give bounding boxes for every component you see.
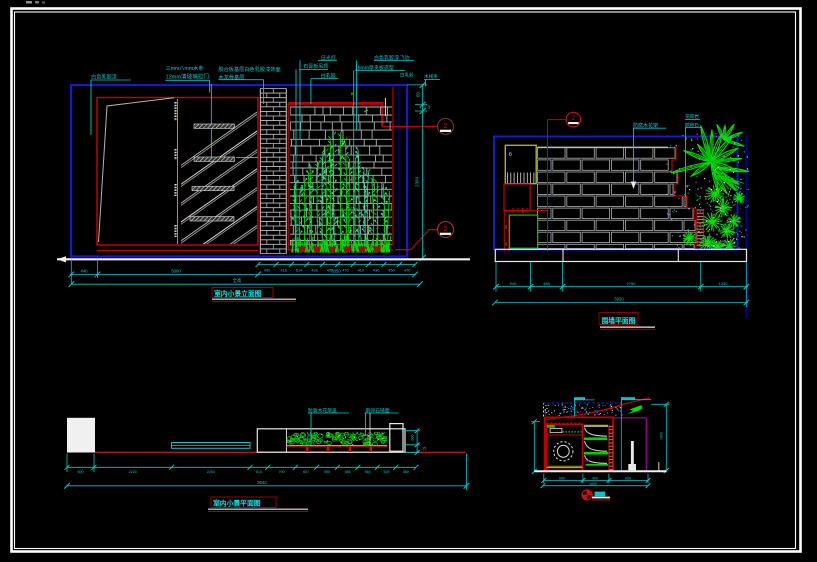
svg-text:485: 485 bbox=[543, 281, 550, 286]
svg-text:595: 595 bbox=[324, 470, 330, 474]
svg-text:花岗岩: 花岗岩 bbox=[685, 113, 699, 120]
svg-text:白乳胶: 白乳胶 bbox=[400, 72, 414, 79]
svg-text:2: 2 bbox=[444, 226, 448, 233]
svg-text:600: 600 bbox=[559, 476, 565, 480]
svg-text:600: 600 bbox=[78, 470, 84, 474]
svg-text:2: 2 bbox=[571, 115, 575, 122]
svg-text:2350: 2350 bbox=[415, 176, 420, 187]
svg-text:600: 600 bbox=[625, 476, 631, 480]
svg-text:514: 514 bbox=[296, 269, 302, 273]
svg-text:飞边: 飞边 bbox=[400, 54, 410, 61]
svg-text:2750: 2750 bbox=[627, 281, 637, 286]
svg-text:1800: 1800 bbox=[660, 432, 664, 440]
svg-text:胶合板基层白色乳胶漆饰面: 胶合板基层白色乳胶漆饰面 bbox=[218, 65, 280, 73]
svg-text:476: 476 bbox=[342, 269, 348, 273]
svg-text:410: 410 bbox=[358, 269, 364, 273]
svg-text:室内小景立面图: 室内小景立面图 bbox=[214, 289, 262, 298]
svg-text:1330: 1330 bbox=[719, 281, 729, 286]
svg-text:440: 440 bbox=[81, 268, 89, 273]
svg-text:1600: 1600 bbox=[589, 482, 597, 486]
svg-text:全高: 全高 bbox=[233, 277, 242, 284]
svg-text:436: 436 bbox=[373, 269, 379, 273]
svg-text:600: 600 bbox=[411, 435, 415, 441]
svg-text:607: 607 bbox=[303, 470, 309, 474]
svg-text:470: 470 bbox=[404, 269, 410, 273]
svg-text:2220: 2220 bbox=[129, 470, 137, 474]
svg-text:585: 585 bbox=[345, 470, 351, 474]
svg-text:室内小景平面图: 室内小景平面图 bbox=[213, 499, 261, 508]
svg-text:790: 790 bbox=[279, 470, 285, 474]
svg-text:白色乳胶漆: 白色乳胶漆 bbox=[91, 72, 117, 80]
svg-text:5000: 5000 bbox=[171, 268, 181, 273]
svg-text:2250: 2250 bbox=[207, 470, 215, 474]
svg-text:436: 436 bbox=[311, 269, 317, 273]
svg-text:防腐木花架: 防腐木花架 bbox=[633, 122, 658, 129]
svg-text:围墙平面图: 围墙平面图 bbox=[602, 316, 636, 325]
svg-text:560: 560 bbox=[365, 470, 371, 474]
svg-text:510: 510 bbox=[256, 470, 262, 474]
svg-text:三mm八mm木条: 三mm八mm木条 bbox=[166, 64, 204, 72]
svg-text:525: 525 bbox=[384, 470, 390, 474]
svg-text:8040: 8040 bbox=[257, 480, 267, 485]
svg-text:450: 450 bbox=[264, 269, 270, 273]
svg-text:木线条: 木线条 bbox=[424, 73, 438, 80]
svg-text:416: 416 bbox=[281, 269, 287, 273]
svg-text:60: 60 bbox=[416, 91, 421, 97]
svg-text:540: 540 bbox=[510, 281, 517, 286]
svg-text:25: 25 bbox=[423, 447, 427, 451]
svg-text:5920: 5920 bbox=[614, 296, 624, 301]
svg-text:400: 400 bbox=[592, 476, 598, 480]
svg-text:B: B bbox=[509, 152, 512, 157]
svg-text:12mm清玻璃拉门: 12mm清玻璃拉门 bbox=[166, 73, 210, 81]
svg-text:450: 450 bbox=[388, 269, 394, 273]
svg-text:2: 2 bbox=[444, 123, 448, 130]
svg-text:3350: 3350 bbox=[331, 268, 341, 273]
svg-text:580: 580 bbox=[403, 470, 409, 474]
